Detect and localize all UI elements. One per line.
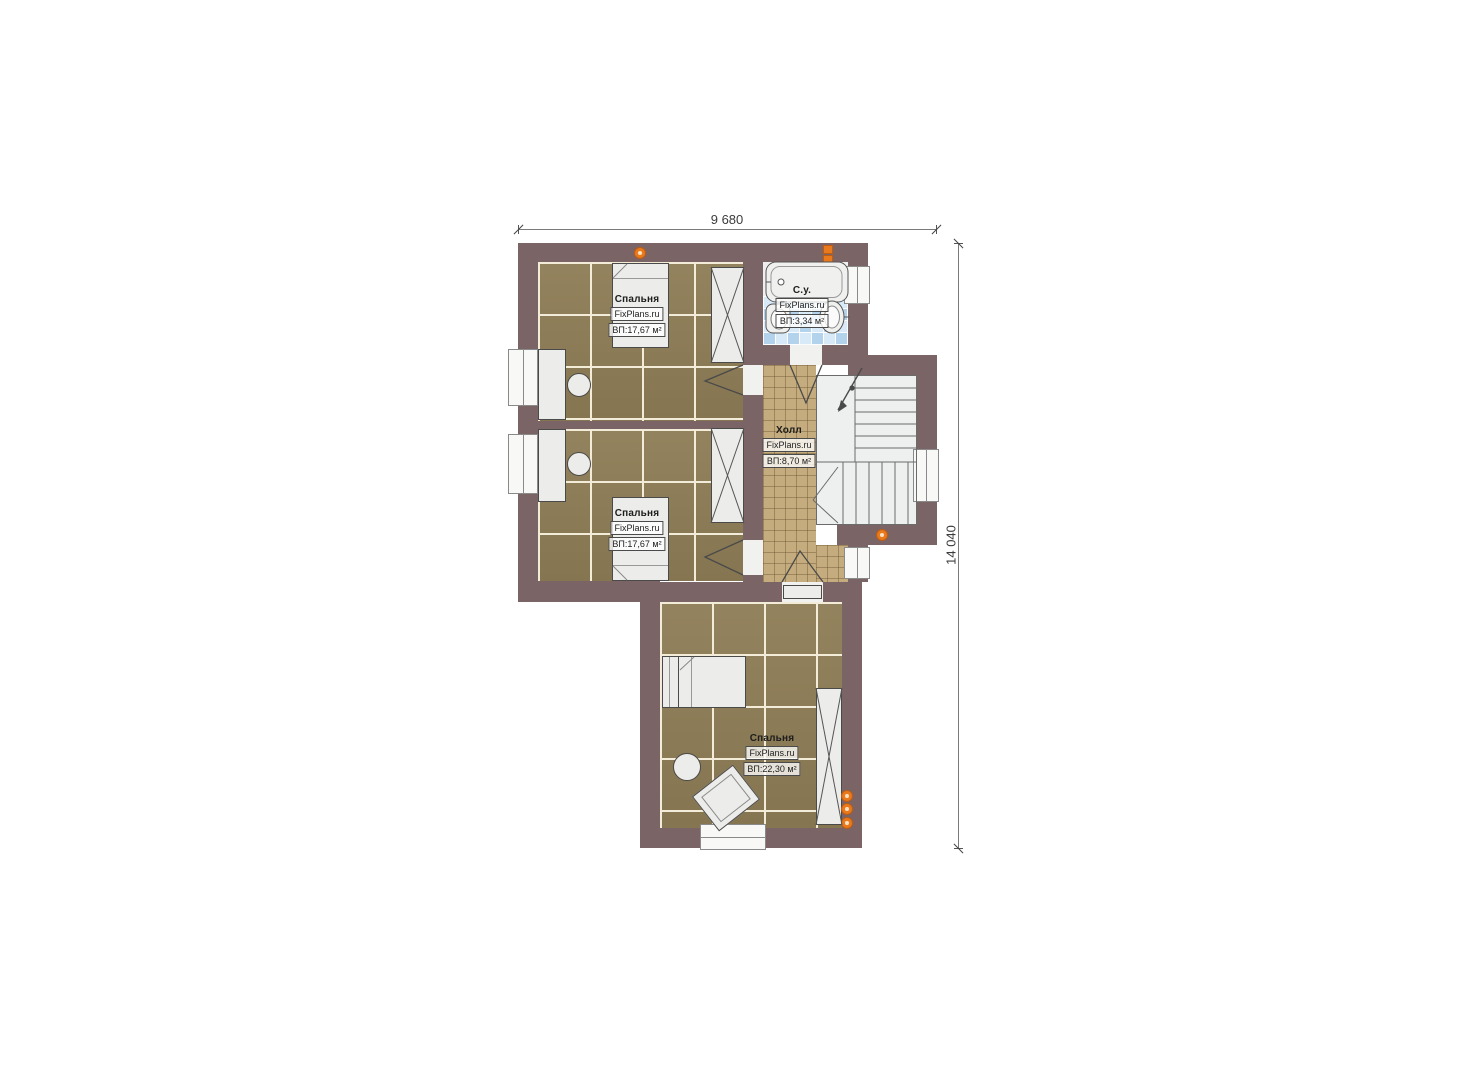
brand-label: FixPlans.ru [775, 298, 828, 312]
room-name: Спальня [615, 294, 660, 305]
window-bedroom-top-left [508, 349, 538, 406]
dimension-label-width: 9 680 [711, 212, 744, 227]
door-opening-bathroom [790, 345, 822, 365]
orange-marker-icon [876, 529, 888, 541]
room-label-bathroom: С.у. FixPlans.ru ВП:3,34 м² [775, 285, 828, 328]
area-label: ВП:8,70 м² [763, 454, 815, 468]
door-opening-bedroom-top [743, 365, 763, 395]
room-name: Спальня [750, 733, 795, 744]
room-label-bedroom-middle: Спальня FixPlans.ru ВП:17,67 м² [608, 508, 665, 551]
floor-stairwell [816, 375, 917, 525]
dimension-label-height: 14 040 [944, 525, 959, 565]
orange-marker-icon [841, 817, 853, 829]
orange-marker-icon [823, 245, 833, 254]
wall-bedrooms-hall-divider [743, 262, 763, 582]
window-stairwell-right [913, 449, 939, 502]
room-name: Холл [776, 425, 802, 436]
wardrobe-bedroom-bottom [816, 688, 842, 825]
round-table-bedroom-bottom [673, 753, 701, 781]
door-leaf-bedroom-bottom [783, 585, 822, 599]
chair-bedroom-middle [567, 452, 591, 476]
brand-label: FixPlans.ru [610, 521, 663, 535]
dimension-line-width [518, 229, 937, 230]
brand-label: FixPlans.ru [745, 746, 798, 760]
wall-left [518, 243, 538, 600]
wall-upper-block-bottom [518, 581, 660, 602]
orange-marker-icon [841, 790, 853, 802]
area-label: ВП:22,30 м² [743, 762, 800, 776]
orange-marker-icon [823, 255, 833, 264]
desk-bedroom-top [538, 349, 566, 420]
room-label-bedroom-bottom: Спальня FixPlans.ru ВП:22,30 м² [743, 733, 800, 776]
floor-hall-corridor [763, 365, 816, 582]
room-label-hall: Холл FixPlans.ru ВП:8,70 м² [762, 425, 815, 468]
room-name: С.у. [793, 285, 811, 296]
bed-bedroom-bottom [678, 656, 746, 708]
orange-marker-icon [634, 247, 646, 259]
wardrobe-bedroom-middle [711, 428, 744, 523]
area-label: ВП:3,34 м² [776, 314, 828, 328]
brand-label: FixPlans.ru [610, 307, 663, 321]
brand-label: FixPlans.ru [762, 438, 815, 452]
chair-bedroom-top [567, 373, 591, 397]
area-label: ВП:17,67 м² [608, 537, 665, 551]
wall-top [518, 243, 868, 262]
floor-plan-canvas: Спальня FixPlans.ru ВП:17,67 м² Спальня … [0, 0, 1474, 1080]
orange-marker-icon [841, 803, 853, 815]
window-bathroom-right [844, 266, 870, 304]
window-bedroom-bottom [700, 824, 766, 850]
window-hall-right [844, 547, 870, 579]
bed-headboard-bedroom-bottom [662, 656, 679, 708]
wall-bedroom-bottom-left [640, 582, 660, 848]
window-bedroom-middle-left [508, 434, 538, 494]
room-label-bedroom-top: Спальня FixPlans.ru ВП:17,67 м² [608, 294, 665, 337]
wardrobe-bedroom-top [711, 267, 744, 363]
desk-bedroom-middle [538, 429, 566, 502]
area-label: ВП:17,67 м² [608, 323, 665, 337]
wall-bathroom-right [848, 243, 868, 365]
wall-bedroom-bottom-top [640, 582, 862, 602]
door-opening-bedroom-middle [743, 540, 763, 575]
room-name: Спальня [615, 508, 660, 519]
